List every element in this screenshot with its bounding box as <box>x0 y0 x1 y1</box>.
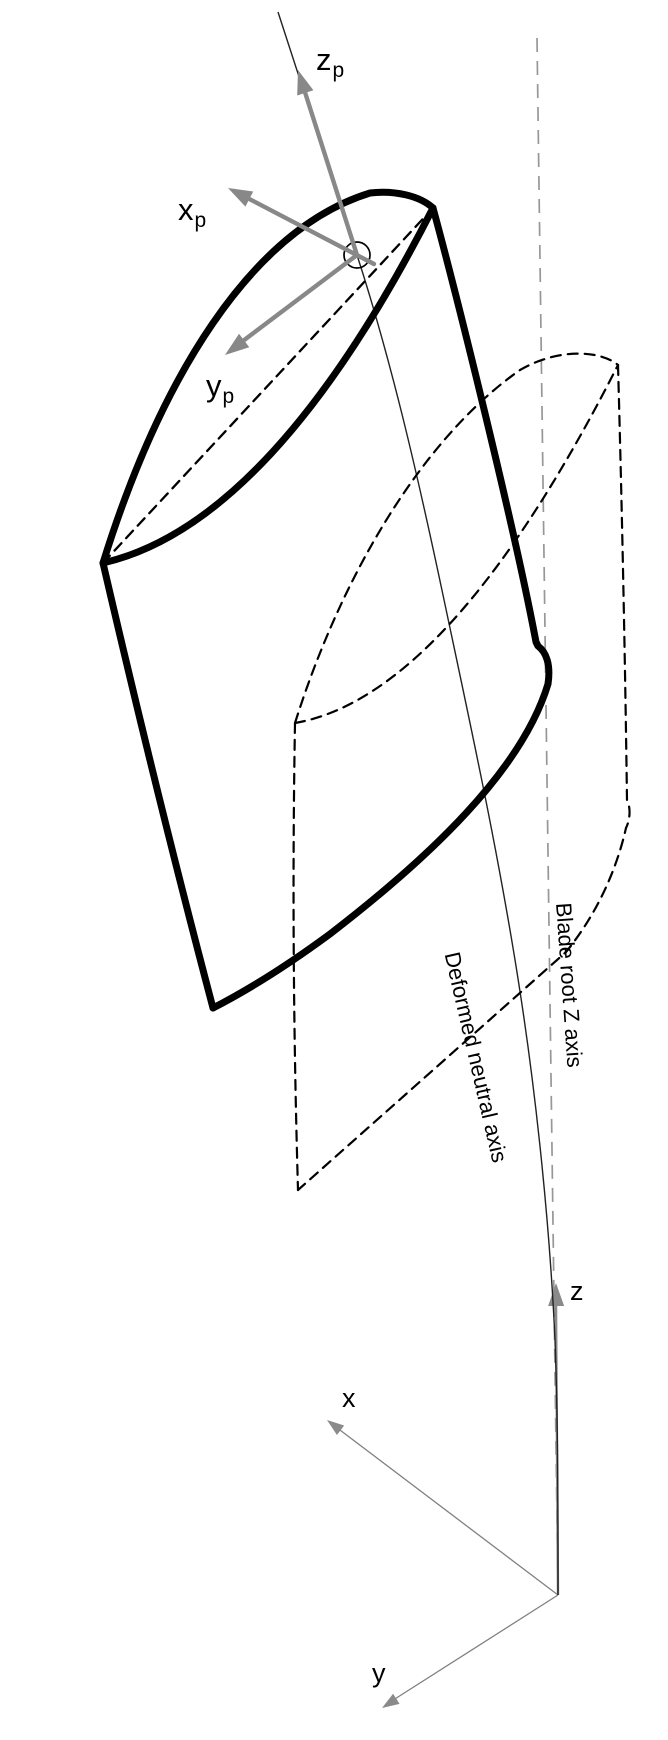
principal-frame-arrows <box>220 67 374 361</box>
yp-label-main: y <box>206 368 222 403</box>
undeformed-top-lower-arc <box>295 365 618 723</box>
z-axis-label: z <box>570 1278 584 1305</box>
xp-label-sub: p <box>195 209 207 232</box>
x-axis-label: x <box>342 1385 356 1412</box>
xp-axis-arrowhead-icon <box>224 180 253 206</box>
deformed-neutral-axis-line <box>278 12 558 1595</box>
zp-label-sub: p <box>333 59 345 82</box>
z-axis-arrowhead-icon <box>548 1283 564 1306</box>
yp-axis-shaft <box>231 255 357 350</box>
undeformed-top-upper-arc <box>295 354 618 723</box>
y-axis-label: y <box>372 1660 386 1687</box>
blade-root-z-axis-line <box>537 38 558 1595</box>
y-axis-arrowhead-icon <box>379 1694 400 1713</box>
zp-axis-arrowhead-icon <box>290 67 313 95</box>
blade-section-deformed-solid <box>103 192 549 1008</box>
zp-axis-label: zp <box>316 44 344 75</box>
yp-axis-label: yp <box>206 370 234 401</box>
x-axis-shaft <box>332 1424 558 1595</box>
x-axis-arrowhead-icon <box>323 1415 344 1435</box>
zp-label-main: z <box>316 42 332 77</box>
deformed-leading-edge <box>103 563 213 1008</box>
xp-axis-label: xp <box>178 194 206 225</box>
deformed-top-upper-arc <box>103 192 433 563</box>
y-axis-shaft <box>387 1595 558 1704</box>
blade-deformation-diagram: zp xp yp x y z Deformed neutral axis Bla… <box>0 0 668 1740</box>
xp-label-main: x <box>178 192 194 227</box>
diagram-canvas <box>0 0 668 1740</box>
yp-label-sub: p <box>223 385 235 408</box>
